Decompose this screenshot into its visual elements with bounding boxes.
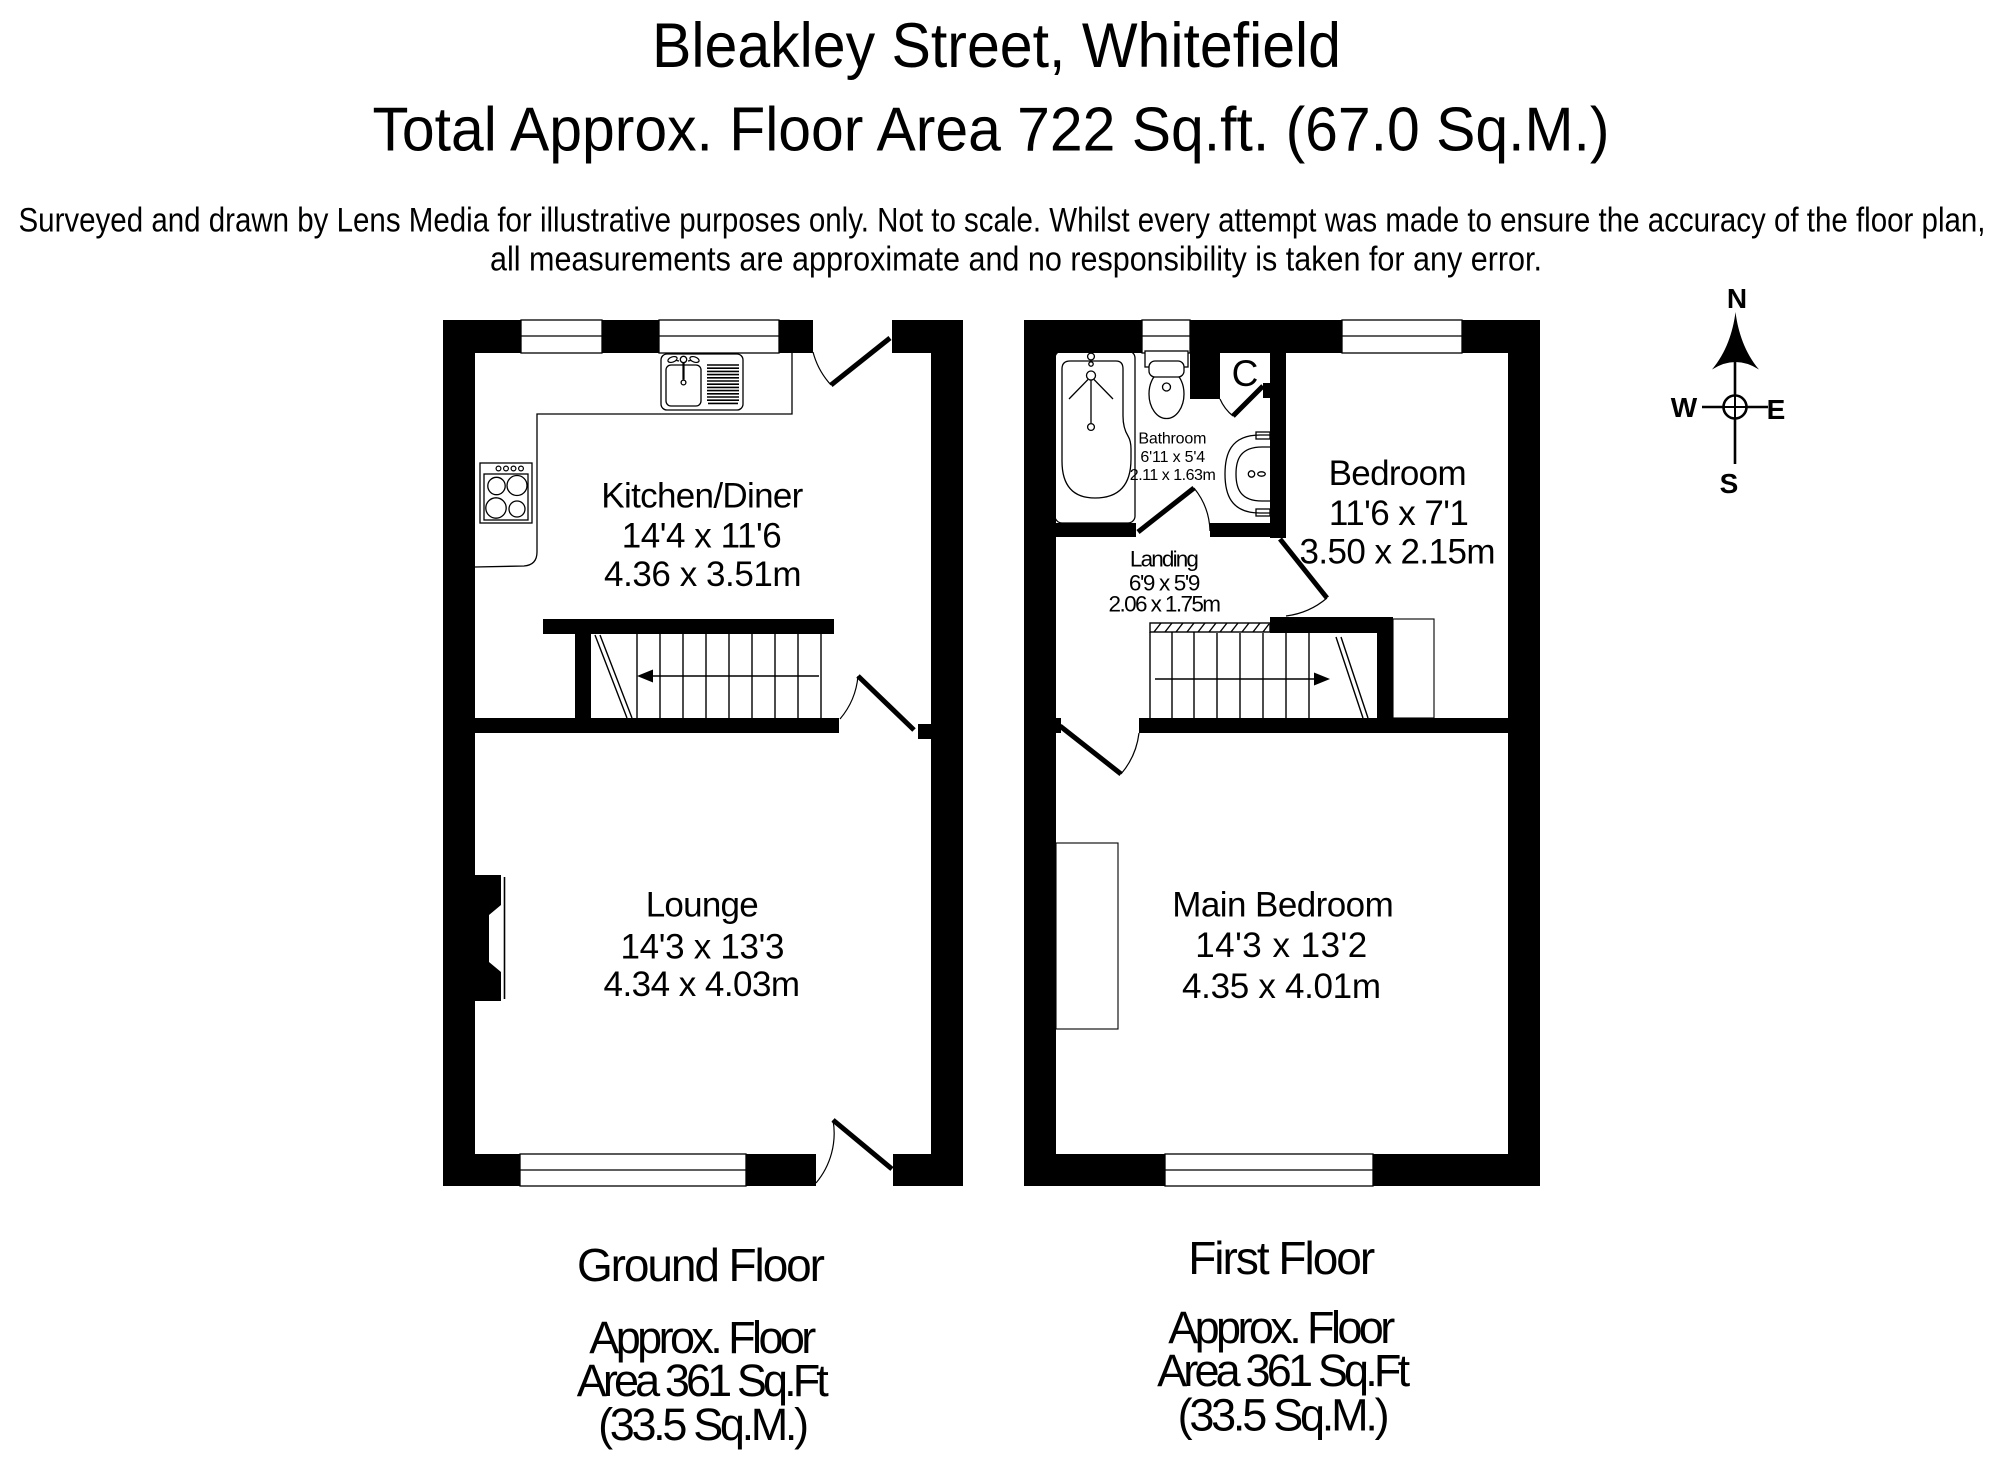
svg-text:First Floor: First Floor — [1188, 1232, 1375, 1284]
svg-text:14'3 x 13'3: 14'3 x 13'3 — [621, 928, 785, 967]
svg-text:E: E — [1767, 394, 1786, 425]
svg-text:(33.5 Sq.M.): (33.5 Sq.M.) — [598, 1399, 809, 1450]
svg-text:2.11 x 1.63m: 2.11 x 1.63m — [1130, 467, 1216, 484]
svg-text:C: C — [1232, 353, 1259, 394]
svg-text:4.35 x 4.01m: 4.35 x 4.01m — [1182, 967, 1381, 1006]
svg-text:11'6 x 7'1: 11'6 x 7'1 — [1329, 494, 1469, 533]
svg-text:4.34 x 4.03m: 4.34 x 4.03m — [604, 965, 801, 1004]
svg-text:14'3 x 13'2: 14'3 x 13'2 — [1195, 926, 1367, 965]
svg-text:Bleakley Street, Whitefield: Bleakley Street, Whitefield — [652, 11, 1341, 81]
svg-text:N: N — [1727, 283, 1747, 314]
svg-text:(33.5 Sq.M.): (33.5 Sq.M.) — [1178, 1390, 1390, 1441]
svg-text:Ground Floor: Ground Floor — [577, 1239, 825, 1291]
svg-text:Bedroom: Bedroom — [1329, 454, 1467, 493]
svg-text:Landing: Landing — [1130, 547, 1199, 572]
svg-text:all measurements are approxima: all measurements are approximate and no … — [490, 241, 1542, 279]
svg-text:Area 361 Sq.Ft: Area 361 Sq.Ft — [1157, 1345, 1410, 1396]
svg-text:Total Approx. Floor Area 722 S: Total Approx. Floor Area 722 Sq.ft. (67.… — [373, 96, 1610, 165]
svg-text:3.50 x 2.15m: 3.50 x 2.15m — [1300, 533, 1496, 572]
svg-text:Surveyed and drawn by Lens Med: Surveyed and drawn by Lens Media for ill… — [19, 202, 1986, 240]
svg-text:2.06 x 1.75m: 2.06 x 1.75m — [1109, 592, 1222, 617]
svg-text:14'4 x 11'6: 14'4 x 11'6 — [622, 517, 782, 556]
svg-text:4.36 x 3.51m: 4.36 x 3.51m — [604, 555, 802, 594]
svg-text:Main Bedroom: Main Bedroom — [1172, 886, 1394, 925]
svg-text:Lounge: Lounge — [646, 886, 759, 925]
svg-text:W: W — [1671, 392, 1698, 423]
svg-text:S: S — [1720, 468, 1739, 499]
svg-text:Kitchen/Diner: Kitchen/Diner — [601, 477, 803, 516]
svg-text:Bathroom: Bathroom — [1138, 431, 1206, 448]
svg-text:6'11 x 5'4: 6'11 x 5'4 — [1140, 449, 1205, 466]
